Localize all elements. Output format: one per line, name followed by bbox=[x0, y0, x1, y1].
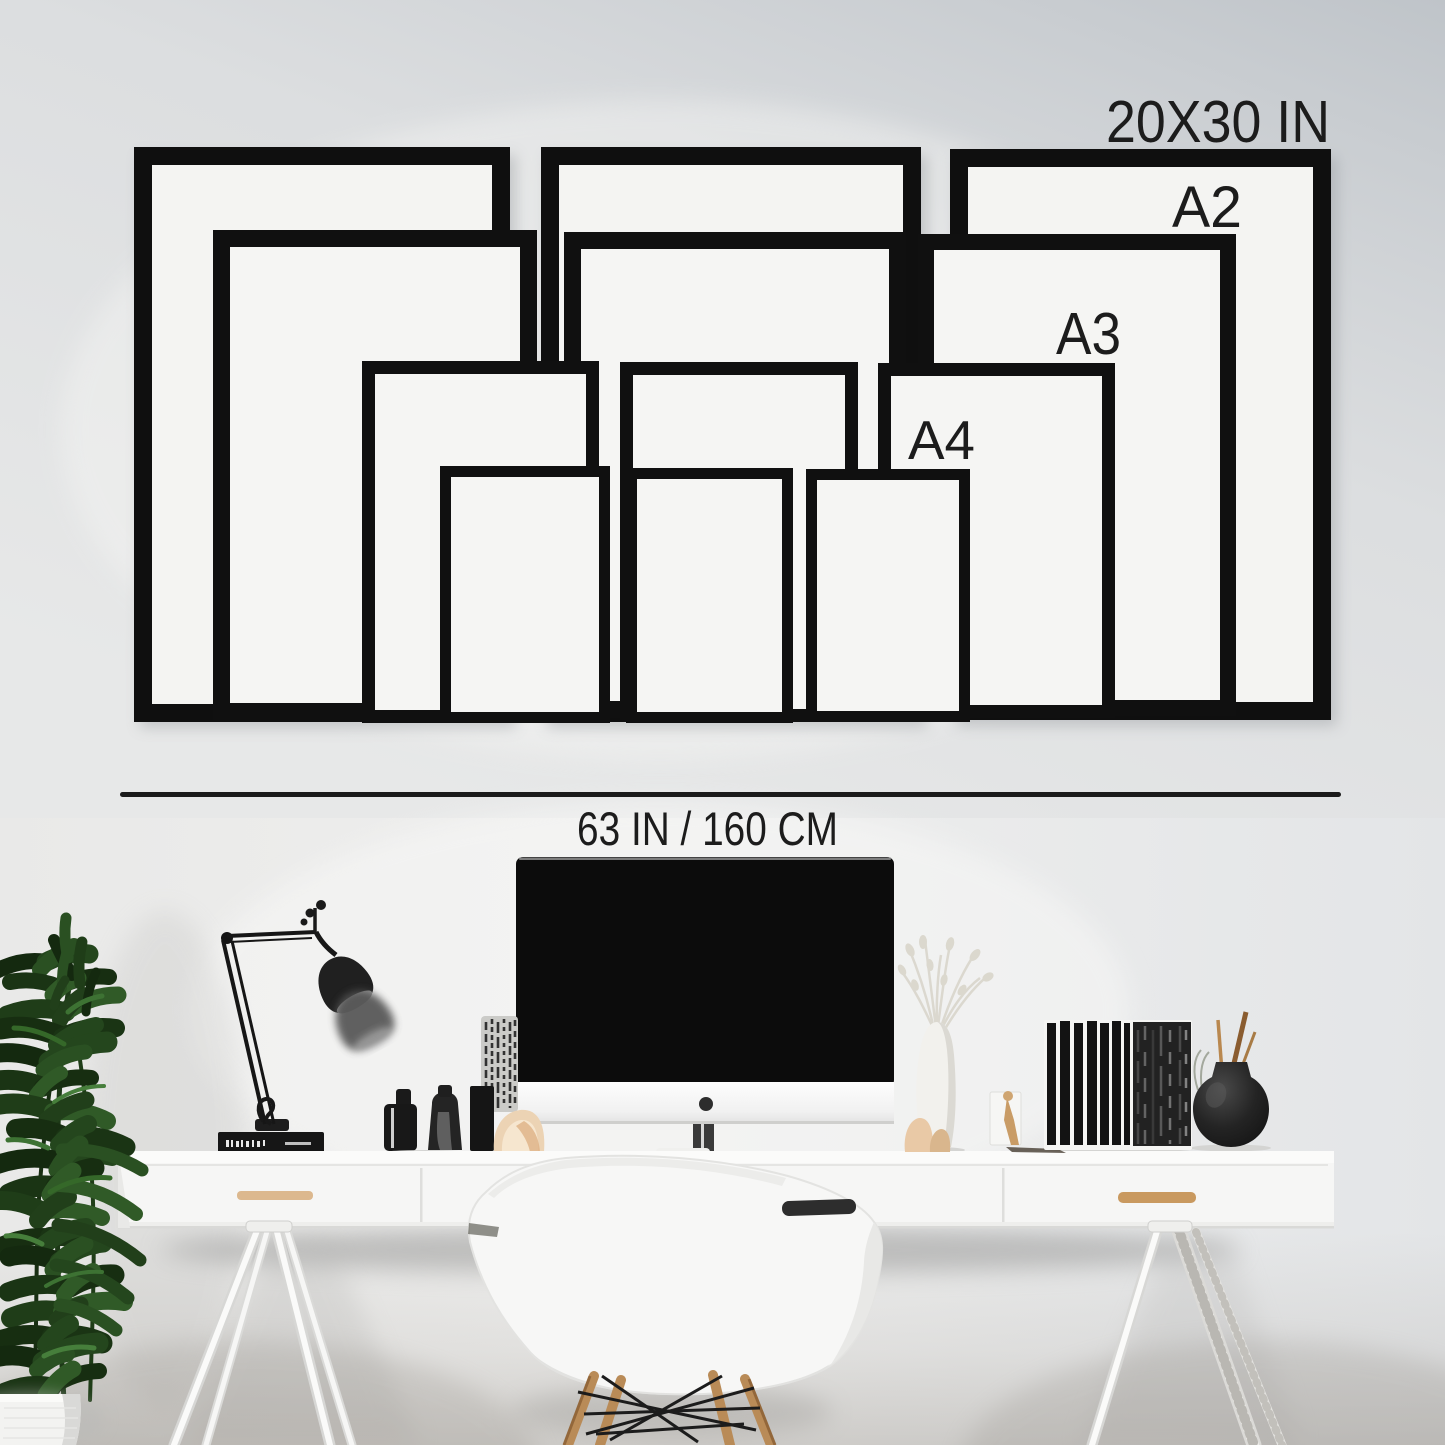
svg-text:A2: A2 bbox=[1172, 175, 1242, 240]
svg-text:A3: A3 bbox=[1056, 301, 1121, 367]
svg-text:A4: A4 bbox=[908, 409, 975, 471]
svg-text:63 IN / 160 CM: 63 IN / 160 CM bbox=[577, 802, 838, 855]
svg-text:20X30 IN: 20X30 IN bbox=[1106, 89, 1330, 155]
